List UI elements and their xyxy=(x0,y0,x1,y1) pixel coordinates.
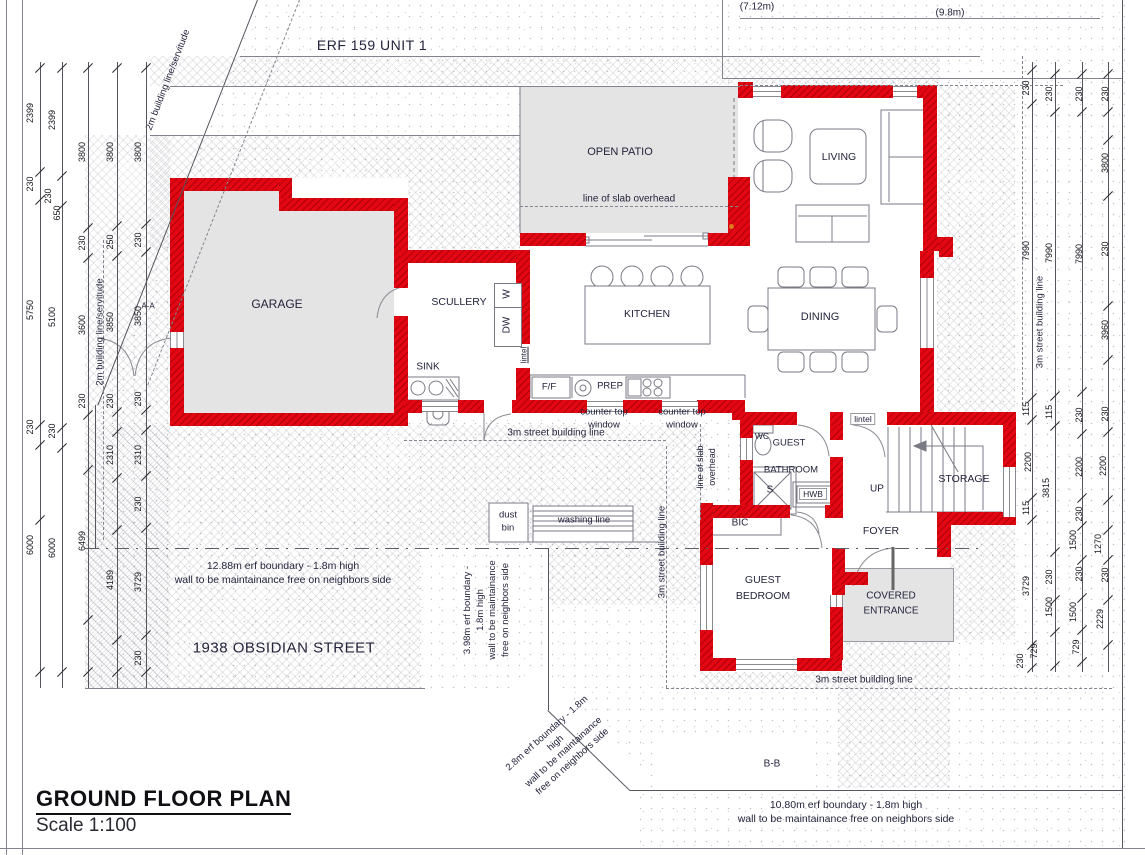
site-line xyxy=(85,688,425,689)
wall xyxy=(170,178,292,191)
dimension-label: 230 xyxy=(1100,406,1110,421)
up-label: UP xyxy=(870,484,884,495)
window xyxy=(893,86,917,97)
wall xyxy=(939,237,953,257)
dimension-label: 5100 xyxy=(47,307,57,327)
dimension-line xyxy=(62,62,63,688)
wall xyxy=(458,400,484,413)
dimension-label: 3729 xyxy=(133,572,143,592)
dimension-label: 2200 xyxy=(1023,452,1033,472)
dimension-label: 230 xyxy=(1074,566,1084,581)
wall xyxy=(830,425,843,440)
servitude-line-label: 2m building line/servitude xyxy=(95,278,106,385)
dimension-label: 230 xyxy=(133,650,143,665)
street-building-line-label: 3m street building line xyxy=(507,428,604,439)
prep-label: PREP xyxy=(597,381,623,392)
frame-line xyxy=(0,848,1145,849)
hwb-label: HWB xyxy=(799,488,827,500)
lintel-label: lintel xyxy=(850,413,875,425)
dimension-label: 115 xyxy=(1044,405,1054,419)
wall xyxy=(279,198,408,211)
erf-label: ERF 159 UNIT 1 xyxy=(317,37,427,53)
dimension-line xyxy=(1032,62,1033,672)
room-label-garage: GARAGE xyxy=(251,297,302,311)
dimension-label: 6000 xyxy=(47,538,57,558)
wall xyxy=(700,503,713,565)
dimension-label: 2229 xyxy=(1095,609,1105,629)
room-label-living: LIVING xyxy=(822,151,856,163)
sink-label: SINK xyxy=(416,362,439,373)
wall xyxy=(400,250,530,263)
window xyxy=(422,401,458,412)
dimension-label: 3800 xyxy=(105,142,115,162)
dimension-label: 2310 xyxy=(133,445,143,465)
wall xyxy=(937,512,951,557)
dimension-line xyxy=(117,62,118,688)
dimension-label: 230 xyxy=(1021,80,1031,95)
erf-boundary xyxy=(85,548,980,549)
dimension-label: 230 xyxy=(47,423,57,438)
wall xyxy=(740,460,753,507)
wall xyxy=(887,412,1016,425)
dimension-label: 5750 xyxy=(25,300,35,320)
wall xyxy=(825,505,843,518)
appliance-label-w: W xyxy=(502,289,513,298)
wall xyxy=(830,412,843,425)
erf-boundary xyxy=(630,790,1122,791)
room-label-covered-entrance: ENTRANCE xyxy=(863,606,918,617)
dimension-label: 230 xyxy=(1044,86,1054,101)
street-building-line-label: 3m street building line xyxy=(657,506,668,598)
slab-overhead-label: line of slab overhead xyxy=(583,194,675,205)
dimension-label: 3729 xyxy=(1021,576,1031,596)
dimension-label: 230 xyxy=(77,393,87,408)
kitchen-counter xyxy=(530,375,745,398)
dimension-label: 7990 xyxy=(1074,244,1084,264)
dimension-label: 7990 xyxy=(1044,243,1054,263)
wall xyxy=(832,572,868,585)
kitchen-island xyxy=(585,266,710,344)
dimension-label: 230 xyxy=(1074,407,1084,422)
appliance-label-dw: DW xyxy=(502,317,513,334)
dimension-label: 1270 xyxy=(1093,534,1103,554)
wall xyxy=(920,348,934,412)
wall xyxy=(740,505,790,518)
page-scale: Scale 1:100 xyxy=(36,815,136,837)
dimension-label: 2200 xyxy=(1098,456,1108,476)
site-line xyxy=(240,56,980,57)
dimension-label: 3960 xyxy=(1100,320,1110,340)
neighbor-dim-line xyxy=(740,18,1100,19)
room-label-covered-entrance: COVERED xyxy=(866,591,915,602)
slab-overhead-label: line of slaboverhead xyxy=(695,445,719,488)
wall xyxy=(740,412,753,438)
dimension-label: 2399 xyxy=(25,103,35,123)
wall xyxy=(708,233,750,246)
room-label-kitchen: KITCHEN xyxy=(624,308,670,320)
dimension-label: 7990 xyxy=(1021,241,1031,261)
wall xyxy=(920,251,934,278)
dimension-line xyxy=(146,62,147,688)
wc-label: WC xyxy=(755,431,769,441)
wall xyxy=(512,400,587,413)
room-label-guest-bedroom: BEDROOM xyxy=(736,590,790,602)
window xyxy=(753,86,781,97)
dimension-label: 230 xyxy=(1044,569,1054,584)
dimension-label: 4189 xyxy=(105,570,115,590)
marker-dot xyxy=(729,224,734,229)
staircase xyxy=(886,416,1002,512)
dimension-label: 3850 xyxy=(105,312,115,332)
street-building-line xyxy=(1022,56,1023,410)
dimension-label: 230 xyxy=(1100,241,1110,256)
boundary-note-12-88: 12.88m erf boundary - 1.8m highwall to b… xyxy=(175,560,392,588)
dimension-label: 729 xyxy=(1071,639,1081,654)
shower-label: S xyxy=(767,485,774,496)
dimension-label: 230 xyxy=(133,232,143,247)
frame-line xyxy=(6,0,7,855)
dust-bin-label: dustbin xyxy=(499,509,517,534)
site-line xyxy=(150,135,520,136)
section-marker-bb: B-B xyxy=(764,759,781,770)
window xyxy=(700,565,713,630)
dimension-label: 230 xyxy=(77,235,87,250)
room-label-bic: BIC xyxy=(732,518,749,529)
slab-overhead-line xyxy=(520,206,738,207)
dimension-label: 2310 xyxy=(105,445,115,465)
street-building-line-label: 3m street building line xyxy=(1035,276,1046,368)
room-label-foyer: FOYER xyxy=(863,525,899,537)
counter-window-label: counter topwindow xyxy=(658,406,706,431)
floor-plan: ERF 159 UNIT 1 (7.12m) (9.8m) OPEN PATIO… xyxy=(0,0,1145,855)
window xyxy=(920,278,934,348)
neighbor-building-line xyxy=(740,85,1063,86)
wall xyxy=(404,400,422,413)
erf-boundary xyxy=(95,405,96,548)
living-set xyxy=(754,110,927,242)
washing-line-label: washing line xyxy=(558,515,610,526)
dimension-label: 3800 xyxy=(133,142,143,162)
neighbor-dim: (9.8m) xyxy=(936,8,965,19)
erf-boundary xyxy=(1122,0,1123,848)
dimension-label: 250 xyxy=(105,234,115,249)
room-label-dining: DINING xyxy=(801,311,840,323)
wall xyxy=(797,658,842,671)
dimension-label: 230 xyxy=(133,496,143,511)
dimension-label: 230 xyxy=(1100,567,1110,582)
dimension-label: 230 xyxy=(1074,506,1084,521)
wall xyxy=(520,233,586,246)
dimension-label: 6499 xyxy=(77,531,87,551)
boundary-note-10-80: 10.80m erf boundary - 1.8m highwall to b… xyxy=(738,799,955,827)
room-label-scullery: SCULLERY xyxy=(431,296,486,308)
room-label-storage: STORAGE xyxy=(938,473,989,485)
wall xyxy=(394,198,408,288)
wall xyxy=(830,457,843,507)
dimension-label: 1500 xyxy=(1068,602,1078,622)
window xyxy=(1003,467,1016,517)
dimension-label: 2200 xyxy=(1074,457,1084,477)
dimension-label: 6000 xyxy=(25,535,35,555)
dimension-label: 3600 xyxy=(77,315,87,335)
dimension-label: 230 xyxy=(133,391,143,406)
street-building-line xyxy=(404,440,666,441)
patio-sliding-door xyxy=(520,86,734,246)
erf-boundary xyxy=(548,548,549,710)
boundary-note-3-98: 3.98m erf boundary -1.8m high wall to be… xyxy=(462,560,512,659)
wall xyxy=(923,85,937,237)
section-marker-aa: A-A xyxy=(141,302,154,311)
room-label-open-patio: OPEN PATIO xyxy=(587,146,653,158)
dimension-label: 3800 xyxy=(77,142,87,162)
window xyxy=(830,595,843,607)
dimension-label: 3815 xyxy=(1041,478,1051,498)
dimension-label: 3850 xyxy=(133,306,143,326)
dimension-label: 2399 xyxy=(47,110,57,130)
dimension-label: 230 xyxy=(25,176,35,191)
frame-line xyxy=(22,0,23,855)
dimension-label: 230 xyxy=(1100,86,1110,101)
street-building-line-label: 3m street building line xyxy=(815,675,912,686)
wall xyxy=(1003,425,1016,467)
street-building-line xyxy=(666,688,1112,689)
window xyxy=(170,332,184,348)
wall xyxy=(170,413,408,426)
room-label-guest-bathroom: BATHROOM xyxy=(764,465,818,476)
dimension-label: 230 xyxy=(1015,653,1025,668)
window xyxy=(740,438,753,460)
fridge-label: F/F xyxy=(542,382,556,393)
neighbor-plot-line xyxy=(722,0,723,78)
page-title: GROUND FLOOR PLAN xyxy=(36,786,291,815)
dimension-label: 3800 xyxy=(1100,153,1110,173)
dimension-label: 230 xyxy=(1074,86,1084,101)
wall xyxy=(781,85,893,98)
neighbor-plot-line xyxy=(722,78,1122,79)
dimension-label: 1500 xyxy=(1068,530,1078,550)
wall xyxy=(700,658,736,671)
window xyxy=(736,659,797,670)
dimension-label: 230 xyxy=(25,419,35,434)
site-line xyxy=(170,86,740,87)
neighbor-dim: (7.12m) xyxy=(740,2,774,13)
lintel-label: lintel xyxy=(520,347,529,363)
dimension-line xyxy=(40,62,41,688)
wall xyxy=(830,607,843,660)
room-label-guest-bathroom: GUEST xyxy=(773,438,806,449)
dimension-line xyxy=(88,62,89,688)
street-name: 1938 OBSIDIAN STREET xyxy=(193,640,376,657)
dimension-label: 115 xyxy=(1021,501,1031,515)
dimension-line xyxy=(1055,62,1056,672)
room-label-guest-bedroom: GUEST xyxy=(745,574,781,586)
dimension-label: 230 xyxy=(105,393,115,408)
wall xyxy=(623,400,662,413)
dimension-label: 115 xyxy=(1021,402,1031,416)
